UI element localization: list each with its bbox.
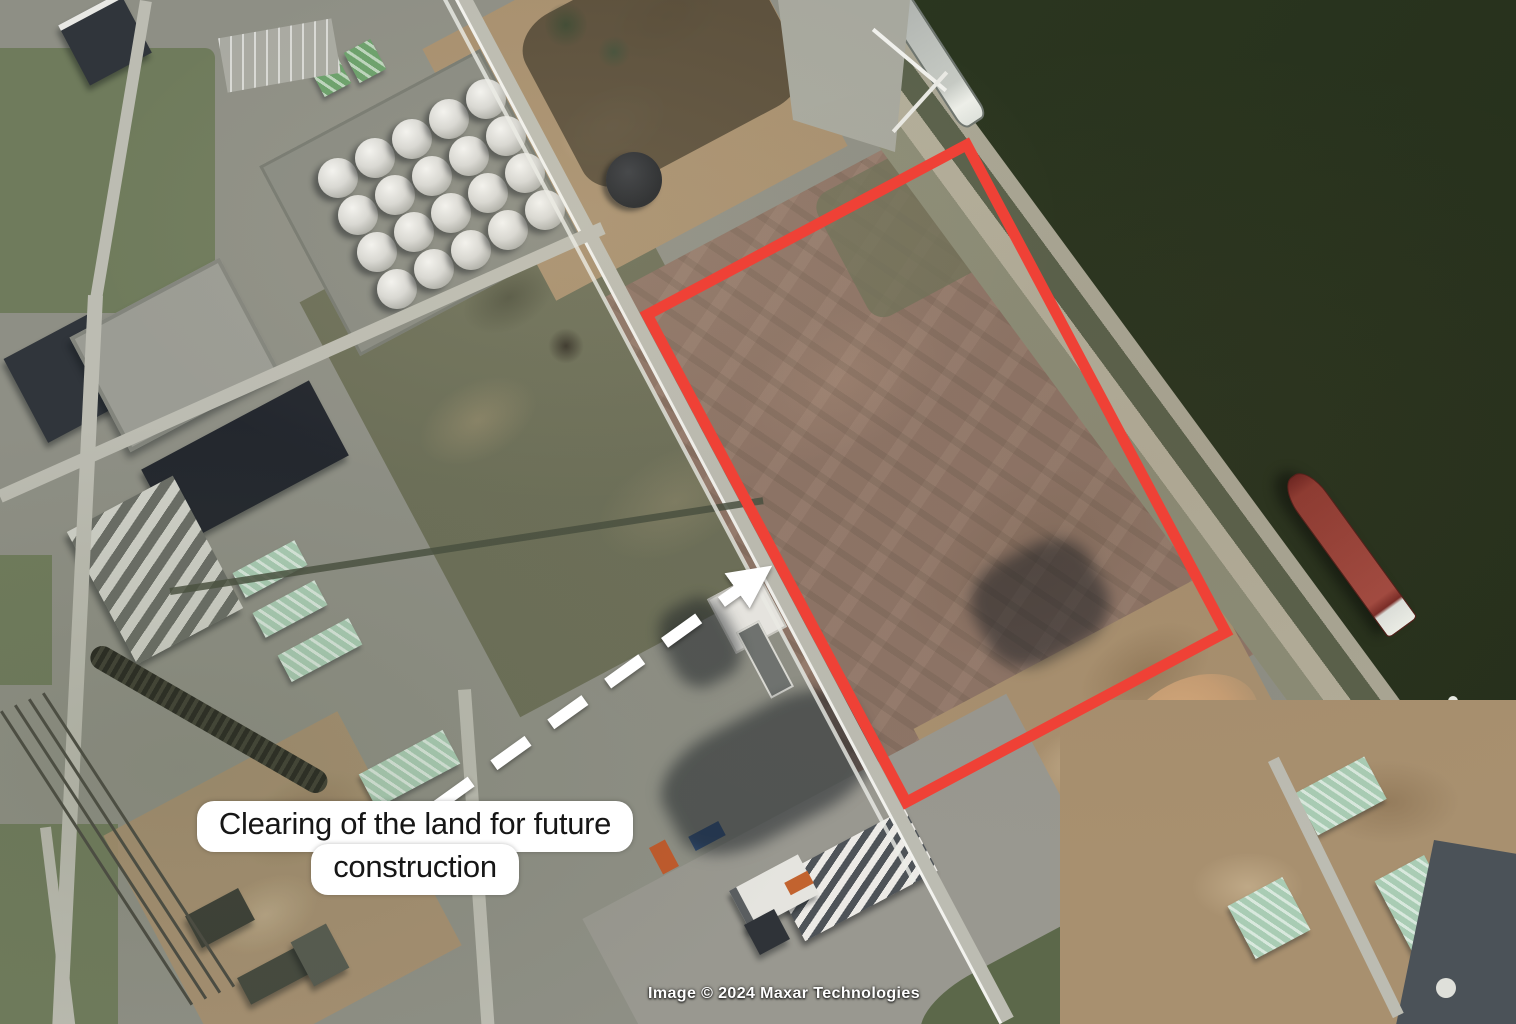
grass-strip <box>0 555 52 685</box>
satellite-map: Clearing of the land for future construc… <box>0 0 1516 1024</box>
grass-field <box>0 48 215 313</box>
storage-tank <box>338 195 378 235</box>
storage-tank <box>377 269 417 309</box>
green-shed <box>253 580 328 638</box>
storage-tank <box>355 138 395 178</box>
storage-tank <box>318 158 358 198</box>
attribution-text: Image © 2024 Maxar Technologies <box>648 985 920 1003</box>
bare-tree <box>548 328 584 364</box>
green-roof-building <box>344 39 386 83</box>
storage-tank <box>375 175 415 215</box>
storage-tank <box>394 212 434 252</box>
storage-tank <box>392 119 432 159</box>
white-tanks-pair <box>1436 978 1456 998</box>
storage-tank-dark <box>606 152 662 208</box>
storage-tank <box>449 136 489 176</box>
storage-tank <box>431 193 471 233</box>
storage-tank <box>451 230 491 270</box>
tree <box>598 36 630 68</box>
storage-tank <box>357 232 397 272</box>
storage-tank <box>412 156 452 196</box>
annotation-label-line2: construction <box>311 844 519 895</box>
storage-tank <box>429 99 469 139</box>
storage-tank <box>414 249 454 289</box>
green-shed <box>278 618 363 682</box>
tree <box>545 2 587 48</box>
storage-tank <box>488 210 528 250</box>
storage-tank <box>468 173 508 213</box>
green-warehouse-long <box>359 730 461 808</box>
annotation-label: Clearing of the land for future construc… <box>160 801 670 895</box>
